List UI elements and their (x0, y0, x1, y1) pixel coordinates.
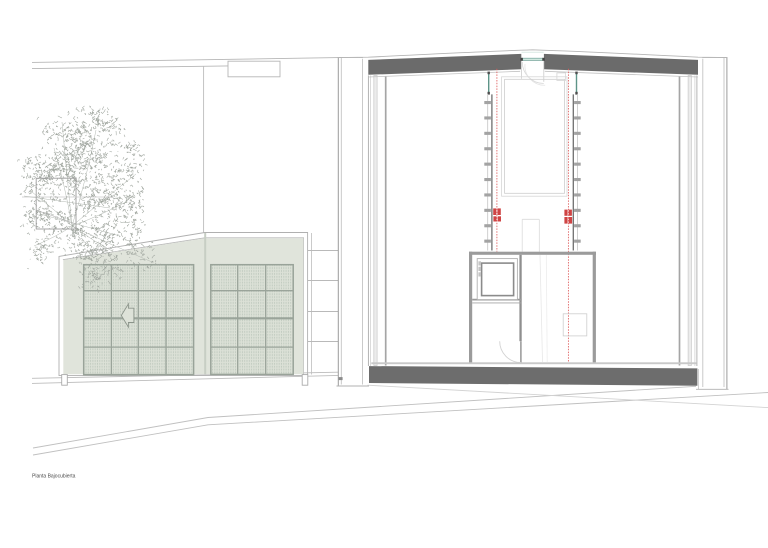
svg-text:Planta Bajocubierta: Planta Bajocubierta (32, 474, 76, 480)
